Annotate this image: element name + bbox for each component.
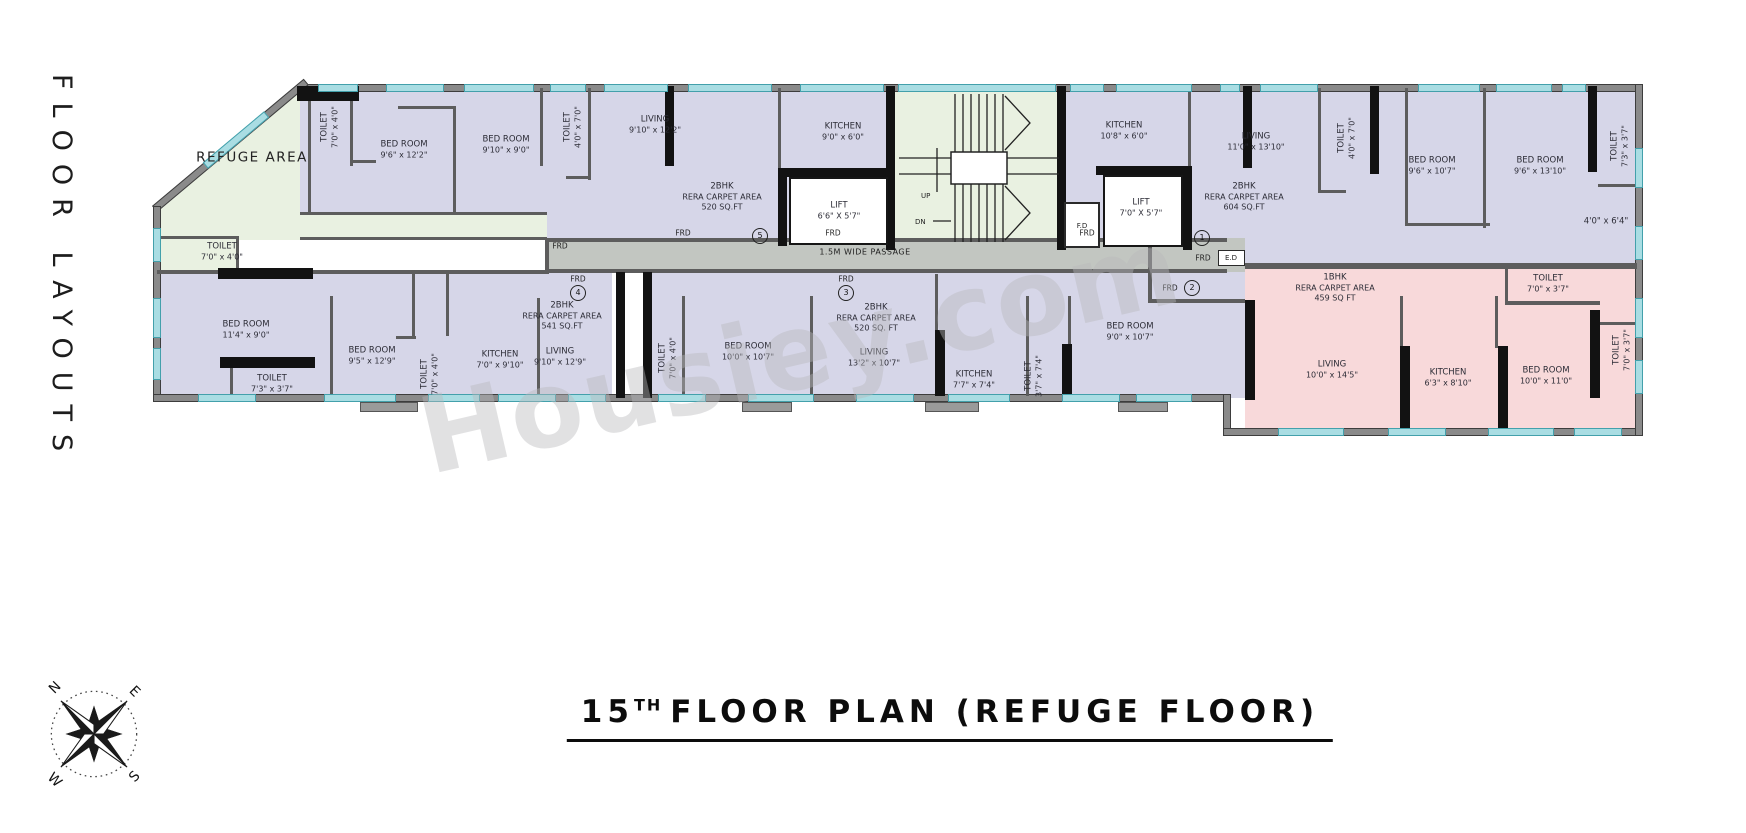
wall [1150,299,1245,303]
unit-number-marker: 2 [1184,280,1200,296]
unit3-region [652,272,1245,398]
ed-label: E.D [1225,254,1237,262]
stairs-up-label: UP [921,192,930,200]
room-label: 1BHKRERA CARPET AREA459 SQ FT [1295,273,1374,304]
window [1278,428,1344,436]
shear-wall [616,272,625,398]
wall [778,88,781,168]
ledge [925,402,979,412]
shear-wall [1498,346,1508,428]
window [498,394,556,402]
room-label: BED ROOM9'0" x 10'7" [1106,322,1153,343]
shear-wall [1400,346,1410,428]
window [856,394,914,402]
window [153,348,161,380]
wall [1148,238,1152,302]
room-label: BED ROOM11'4" x 9'0" [222,320,269,341]
window [1562,84,1586,92]
ledge [742,402,792,412]
room-label: TOILET7'3" x 3'7" [1610,125,1631,167]
window [1070,84,1104,92]
wall [1495,296,1498,348]
wall [545,238,549,273]
wall [350,160,376,163]
room-label: REFUGE AREA [196,150,308,167]
shear-wall [935,330,945,396]
room-label: TOILET7'3" x 3'7" [251,374,293,395]
room-label: KITCHEN6'3" x 8'10" [1424,368,1471,389]
room-label: TOILET7'0" x 4'0" [420,353,441,395]
window [1574,428,1622,436]
room-label: TOILET3'7" x 7'4" [1024,355,1045,397]
title-text: FLOOR PLAN (REFUGE FLOOR) [670,694,1319,730]
room-label: KITCHEN10'8" x 6'0" [1100,121,1147,142]
passage-label: 1.5M WIDE PASSAGE [819,248,910,257]
refuge-corridor-region [300,212,547,240]
wall [412,274,415,336]
shear-wall [1183,166,1192,250]
wall [157,236,239,239]
wall [540,88,543,166]
wall [682,296,685,396]
wall [1505,301,1600,305]
frd-door-label: FRD [838,275,853,284]
unit-number-marker: 4 [570,285,586,301]
room-label: LIVING10'0" x 14'5" [1306,360,1358,381]
wall [300,212,547,215]
window [568,394,606,402]
compass-w-label: W [44,770,65,791]
window [324,394,396,402]
room-label: BED ROOM9'6" x 13'10" [1514,156,1566,177]
shear-wall [1590,310,1600,398]
frd-door-label: FRD [675,229,690,238]
room-label: KITCHEN7'7" x 7'4" [953,370,995,391]
wall [157,270,549,274]
window [1635,298,1643,338]
room-label: LIVING9'10" x 12'9" [534,347,586,368]
room-label: KITCHEN9'0" x 6'0" [822,122,864,143]
wall [566,176,590,179]
title-number: 15 [581,694,634,730]
wall [935,274,938,336]
window [1488,428,1554,436]
wall [398,106,456,109]
room-label: TOILET7'0" x 3'7" [1612,329,1633,371]
frd-door-label: FRD [825,229,840,238]
wall [300,237,547,240]
room-label: 2BHKRERA CARPET AREA520 SQ. FT [836,303,915,334]
window [198,394,256,402]
ledge [360,402,418,412]
unit-number-marker: 1 [1194,230,1210,246]
room-label: TOILET7'0" x 4'0" [201,242,243,263]
room-label: TOILET4'0" x 7'0" [563,106,584,148]
window [1220,84,1240,92]
window [688,84,772,92]
window [1635,148,1643,188]
room-label: LIVING9'10" x 12'2" [629,115,681,136]
shear-wall [218,268,313,279]
wall [810,296,813,396]
page: FLOOR LAYOUTS [0,0,1746,833]
compass-e-label: E [126,683,144,701]
window [464,84,534,92]
unit-number-marker: 3 [838,285,854,301]
window [386,84,444,92]
window [1635,360,1643,394]
window [748,394,814,402]
room-label: BED ROOM9'6" x 12'2" [380,140,427,161]
fd-label: F.D [1077,222,1088,230]
room-label: BED ROOM9'5" x 12'9" [348,346,395,367]
wall [1598,184,1638,187]
shear-wall [1062,344,1072,396]
window [1062,394,1120,402]
staircase: UP DN [893,88,1065,248]
window [1496,84,1552,92]
floor-layouts-caption: FLOOR LAYOUTS [46,74,77,474]
shear-wall [778,168,787,246]
room-label: 2BHKRERA CARPET AREA604 SQ.FT [1204,182,1283,213]
title-ordinal: TH [634,696,662,715]
window [153,298,161,338]
wall [308,88,311,214]
compass-n-label: N [46,679,65,698]
window [428,394,480,402]
wall [1405,223,1490,226]
room-label: LIFT7'0" X 5'7" [1120,198,1163,219]
wall [1600,322,1638,325]
unit-number-marker: 5 [752,228,768,244]
room-label: BED ROOM9'6" x 10'7" [1408,156,1455,177]
window [800,84,884,92]
wall [1400,296,1403,348]
window [1116,84,1192,92]
wall [1318,190,1346,193]
room-label: BED ROOM10'0" x 10'7" [722,342,774,363]
frd-door-label: FRD [1162,284,1177,293]
room-label: TOILET7'0" x 4'0" [658,337,679,379]
shear-wall [778,168,893,177]
frd-door-label: FRD [570,275,585,284]
window [1635,226,1643,260]
wall [588,88,591,180]
wall [446,274,449,336]
room-label: TOILET7'0" x 3'7" [1527,274,1569,295]
room-label: LIFT6'6" X 5'7" [818,201,861,222]
window [658,394,706,402]
shear-wall [1588,86,1597,172]
shear-wall [1096,166,1192,175]
room-label: KITCHEN7'0" x 9'10" [476,350,523,371]
room-label: 2BHKRERA CARPET AREA520 SQ.FT [682,182,761,213]
window [1136,394,1192,402]
window [1388,428,1446,436]
shear-wall [643,272,652,398]
wall [330,296,333,396]
window [948,394,1010,402]
wall [1245,263,1637,269]
room-label: BED ROOM10'0" x 11'0" [1520,366,1572,387]
wall [396,336,416,339]
room-label: LIVING11'0" x 13'10" [1227,132,1284,153]
room-label: TOILET7'0" x 4'0" [320,106,341,148]
wall [230,366,233,396]
window [318,84,358,92]
stairs-down-label: DN [915,218,926,226]
shear-wall [1370,86,1379,174]
window [153,228,161,262]
compass-s-label: S [126,768,144,786]
wall [1318,88,1321,192]
window [1260,84,1318,92]
window [604,84,668,92]
shear-wall [1245,300,1255,400]
window [550,84,586,92]
wall [453,106,456,214]
room-label: 4'0" x 6'4" [1584,217,1629,228]
room-label: TOILET4'0" x 7'0" [1337,117,1358,159]
window [1418,84,1480,92]
wall [1188,88,1191,178]
frd-door-label: FRD [1195,254,1210,263]
page-title: 15THFLOOR PLAN (REFUGE FLOOR) [567,694,1333,742]
frd-door-label: FRD [552,242,567,251]
room-label: LIVING13'2" x 10'7" [848,348,900,369]
shear-wall [220,357,315,368]
room-label: BED ROOM9'10" x 9'0" [482,135,529,156]
room-label: 2BHKRERA CARPET AREA541 SQ.FT [522,301,601,332]
wall [1505,268,1508,304]
ledge [1118,402,1168,412]
wall [1483,88,1486,228]
compass-rose: N E S W [30,670,158,798]
shear-wall [1243,86,1252,168]
